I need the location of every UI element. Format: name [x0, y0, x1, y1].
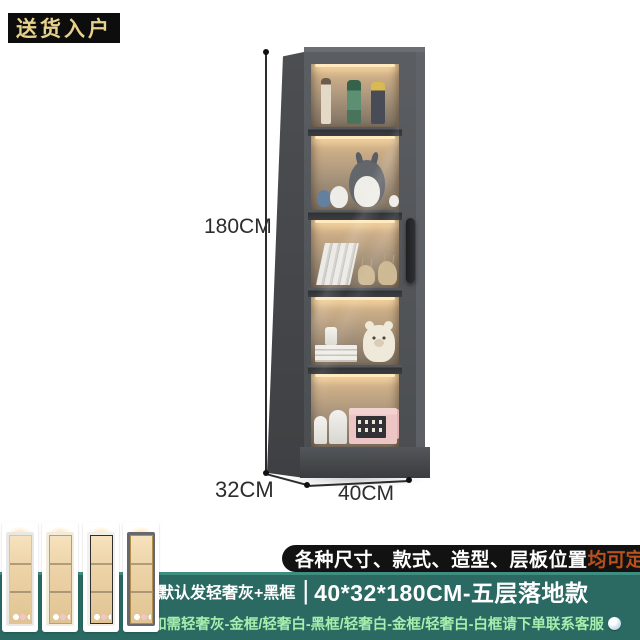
dimension-dot [304, 482, 310, 488]
mini-items [92, 612, 111, 621]
spec-divider: | [302, 575, 309, 606]
dimension-line-height [265, 52, 267, 473]
mini-items [132, 612, 151, 621]
variant-thumbnail-gray-gold [123, 522, 159, 632]
depth-dimension-label: 32CM [215, 477, 274, 503]
variant-thumbnail-white-white [2, 522, 38, 632]
door-handle [406, 218, 415, 283]
mini-cabinet-glass [130, 535, 153, 624]
variant-thumbnail-white-gold [42, 522, 78, 632]
mini-cabinet-glass [9, 535, 32, 624]
mini-shelf [91, 591, 112, 593]
glass-door-reflection [311, 64, 399, 447]
dimension-dot [406, 477, 412, 483]
width-dimension-label: 40CM [338, 482, 394, 506]
cabinet-side-panel [267, 50, 305, 478]
mini-cabinet [127, 532, 155, 626]
mini-shelf [10, 591, 31, 593]
service-ball-icon [608, 617, 621, 630]
mini-cabinet [87, 532, 115, 626]
product-listing-image: 送货入户 [0, 0, 640, 640]
mini-cabinet-glass [49, 535, 72, 624]
dimension-dot [263, 470, 269, 476]
delivery-badge: 送货入户 [8, 13, 120, 43]
mini-cabinet [6, 532, 34, 626]
cabinet-base-plinth [300, 447, 430, 478]
mini-cabinet-glass [90, 535, 113, 624]
customization-banner-highlight: 均可定制 [588, 545, 640, 572]
dimension-dot [263, 49, 269, 55]
customization-banner: 各种尺寸、款式、造型、层板位置均可定制 [282, 545, 640, 572]
mini-shelf [50, 563, 71, 565]
mini-shelf [91, 563, 112, 565]
height-dimension-label: 180CM [204, 215, 272, 239]
variant-contact-text: 如需轻奢灰-金框/轻奢白-黑框/轻奢白-金框/轻奢白-白框请下单联系客服 [152, 613, 604, 634]
mini-cabinet [46, 532, 74, 626]
default-spec-row: 默认发轻奢灰+黑框 | 40*32*180CM-五层落地款 [158, 572, 640, 609]
delivery-badge-label: 送货入户 [16, 13, 112, 43]
mini-shelf [10, 563, 31, 565]
product-size-label: 40*32*180CM-五层落地款 [314, 574, 588, 608]
cabinet-right-edge-highlight [416, 52, 425, 472]
mini-shelf [131, 591, 152, 593]
mini-shelf [50, 591, 71, 593]
mini-items [11, 612, 30, 621]
mini-items [51, 612, 70, 621]
default-finish-label: 默认发轻奢灰+黑框 [158, 579, 295, 603]
variant-contact-row: 如需轻奢灰-金框/轻奢白-黑框/轻奢白-金框/轻奢白-白框请下单联系客服 [152, 609, 640, 637]
customization-banner-text: 各种尺寸、款式、造型、层板位置 [295, 545, 588, 572]
variant-thumbnail-white-black [83, 522, 119, 632]
mini-shelf [131, 563, 152, 565]
